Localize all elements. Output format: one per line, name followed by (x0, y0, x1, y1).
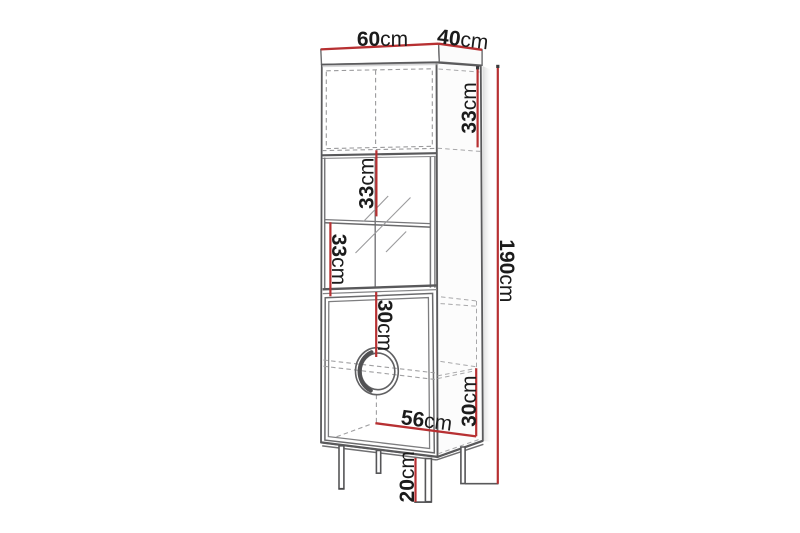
svg-text:190cm: 190cm (495, 239, 518, 302)
svg-text:20cm: 20cm (396, 451, 419, 502)
svg-text:33cm: 33cm (458, 82, 481, 133)
svg-text:30cm: 30cm (373, 300, 396, 351)
svg-text:60cm: 60cm (357, 28, 408, 51)
svg-text:33cm: 33cm (327, 234, 350, 285)
svg-text:30cm: 30cm (458, 376, 481, 427)
svg-text:33cm: 33cm (356, 158, 379, 209)
